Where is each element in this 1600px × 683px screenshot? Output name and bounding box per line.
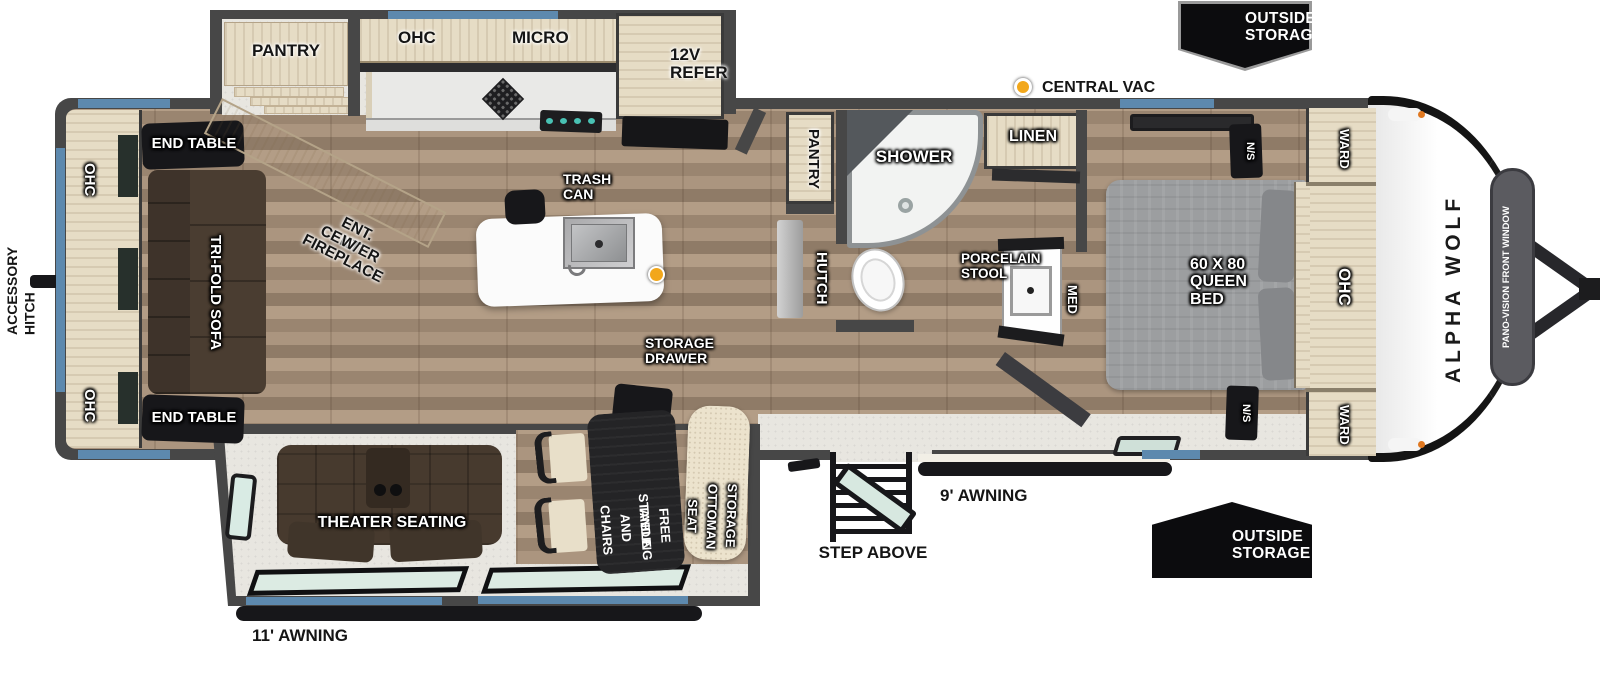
ward-divider-top	[1306, 182, 1376, 186]
end-table-top-label: END TABLE	[146, 136, 242, 152]
ns-bottom-label: N/S	[1232, 392, 1252, 434]
front-marker-dot-top	[1418, 111, 1425, 118]
ns-top-label: N/S	[1236, 130, 1256, 172]
med-label: MED	[1058, 268, 1080, 330]
awning-door-side-label: 9' AWNING	[940, 486, 1027, 506]
door-outside-storage-label: OUTSIDE STORAGE	[1152, 528, 1312, 545]
pantry-step-3	[264, 106, 356, 114]
window-slide-bottom-left	[246, 597, 442, 605]
bath-wall-left	[836, 110, 847, 244]
rear-ohc-inset-1	[118, 135, 138, 197]
window-rear-top	[78, 99, 170, 108]
queen-bed-label: 60 X 80 QUEEN BED	[1134, 256, 1246, 291]
pano-window-label: PANO-VISION FRONT WINDOW	[1501, 176, 1523, 378]
hutch-cabinet	[777, 220, 803, 318]
bedroom-ohc-label: OHC	[1326, 254, 1354, 320]
table-label: FREE STANDING TABLE AND CHAIRS	[595, 422, 676, 565]
refer-label: 12V REFER	[620, 46, 720, 64]
entry-door-opening	[830, 442, 932, 462]
burner-1	[546, 118, 553, 124]
brand-name-label: ALPHA WOLF	[1442, 172, 1484, 404]
front-marker-dot-bottom	[1418, 441, 1425, 448]
window-rear-wall	[56, 148, 65, 392]
cupholder-1	[374, 484, 386, 496]
range-below-refer	[622, 116, 729, 150]
front-outside-storage-label: OUTSIDE STORAGE	[1181, 10, 1309, 27]
central-vac-label: CENTRAL VAC	[1042, 79, 1155, 97]
floorplan-canvas: ALPHA WOLF PANO-VISION FRONT WINDOW OHC …	[0, 0, 1600, 683]
mid-pantry-base-wall	[786, 204, 834, 214]
kitchen-shelf-ledge	[360, 63, 616, 72]
shower-drain	[898, 198, 913, 213]
ward-divider-bottom	[1306, 388, 1376, 392]
vanity-drain	[1027, 287, 1034, 294]
hutch-label: HUTCH	[806, 236, 830, 320]
tri-fold-sofa-label: TRI-FOLD SOFA	[200, 212, 224, 372]
rear-ohc-inset-2	[118, 248, 138, 310]
accessory-hitch-label: ACCESSORY HITCH	[4, 278, 44, 392]
step-above-label: STEP ABOVE	[818, 544, 928, 562]
kitchen-micro-label: MICRO	[512, 28, 569, 48]
shower-label: SHOWER	[852, 148, 976, 166]
trash-can-label: TRASH CAN	[532, 172, 594, 187]
rear-ohc-top-label: OHC	[76, 148, 98, 212]
theater-seating-label: THEATER SEATING	[312, 514, 472, 531]
storage-drawer-label: STORAGE DRAWER	[598, 336, 692, 351]
bed-headboard	[1294, 182, 1310, 388]
pantry-divider-wall	[348, 12, 360, 116]
pantry-step-1	[234, 87, 344, 97]
central-vac-dot	[1014, 78, 1032, 96]
awning-camp-side-bar	[236, 606, 702, 621]
cupholder-2	[390, 484, 402, 496]
ottoman-label: STORAGE OTTOMAN SEAT	[690, 415, 745, 551]
rear-ohc-inset-3	[118, 372, 138, 424]
slide-window-left	[247, 566, 469, 596]
front-marker-light-bottom	[1388, 438, 1422, 451]
window-entry-bottom	[1142, 450, 1200, 459]
kitchen-pantry-label: PANTRY	[230, 42, 342, 60]
end-table-bottom-label: END TABLE	[146, 410, 242, 426]
rear-ohc-bottom-label: OHC	[76, 374, 98, 438]
window-slide-bottom-right	[478, 596, 688, 604]
burner-3	[574, 118, 581, 124]
mid-pantry-label: PANTRY	[798, 120, 822, 198]
trash-can	[504, 189, 546, 225]
kitchen-ohc-label: OHC	[398, 28, 436, 48]
theater-console	[366, 448, 410, 508]
awning-camp-side-label: 11' AWNING	[252, 626, 348, 646]
ward-top-label: WARD	[1328, 120, 1352, 178]
toilet-label: PORCELAIN STOOL	[918, 252, 1004, 267]
linen-label: LINEN	[986, 128, 1080, 145]
burner-2	[560, 118, 567, 124]
sofa-backrest	[148, 170, 190, 394]
pantry-step-2	[250, 97, 350, 106]
bed-pillow-top	[1258, 189, 1299, 283]
front-marker-light-top	[1388, 108, 1422, 121]
central-vac-inlet-island	[648, 266, 665, 283]
entry-door-glass	[832, 462, 917, 534]
burner-4	[588, 118, 595, 124]
bath-wall-bottom	[836, 320, 914, 332]
awning-door-side-bar	[918, 462, 1172, 476]
window-bedroom-top	[1120, 99, 1214, 108]
window-rear-bottom	[78, 450, 170, 459]
ward-bottom-label: WARD	[1328, 396, 1352, 454]
window-kitchen-slide	[388, 11, 558, 19]
vanity-counter-top-ledge	[998, 237, 1064, 251]
sink-drain	[595, 240, 603, 248]
bed-pillow-bottom	[1258, 287, 1299, 381]
